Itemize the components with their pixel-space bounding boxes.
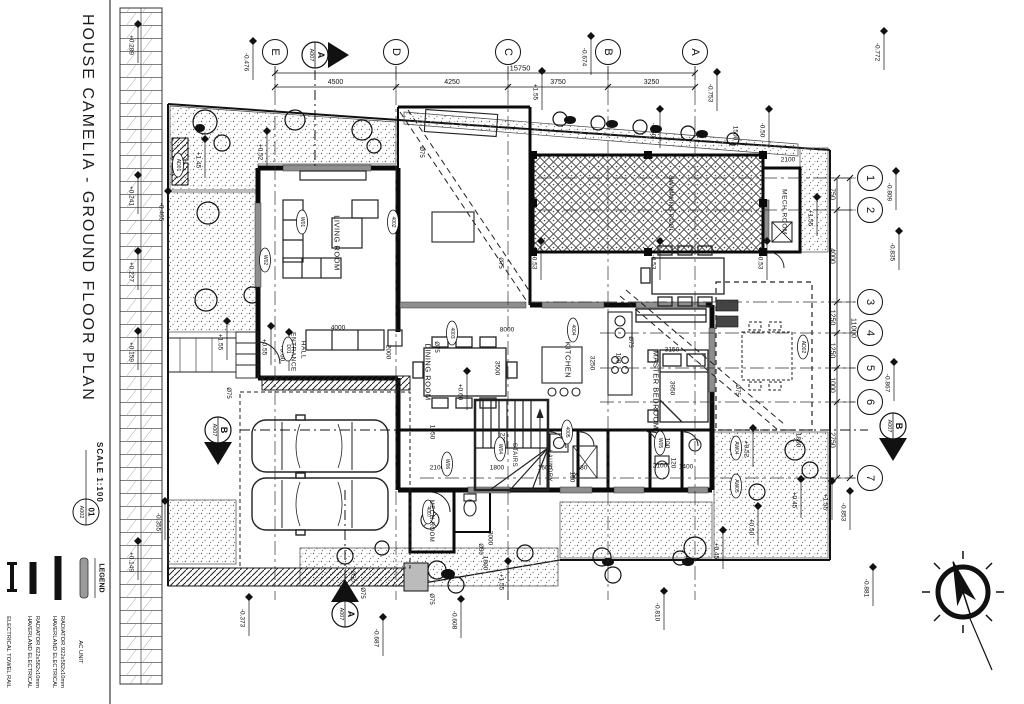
level-value: -0.608 (451, 611, 458, 630)
level-value: +1.55 (807, 210, 814, 227)
tag-code: 4002 (390, 216, 396, 227)
radiator-icon (30, 562, 37, 594)
tag-code: 4003 (449, 327, 455, 338)
dim-interior: 3150 (665, 347, 680, 354)
level-value: +0.60 (457, 384, 464, 401)
element-tag: W06 (442, 452, 453, 476)
tag-code: W02 (262, 255, 268, 266)
room-label: HALL (300, 341, 307, 359)
level-value: +1.45 (195, 152, 202, 169)
level-value: +0.55 (261, 339, 268, 356)
element-tag: W02 (260, 248, 271, 272)
dim-interior: 3500 (494, 361, 501, 376)
section-marker: AA007 (302, 42, 349, 68)
furniture-living (283, 171, 402, 350)
room-label: KITCHEN (564, 342, 573, 378)
grid-column-label: B (602, 48, 614, 55)
level-value: -0.50 (650, 123, 657, 138)
element-tag: W05 (655, 431, 666, 455)
canopy-walls (398, 107, 530, 305)
level-marker: -0.753 (707, 68, 722, 111)
dim-top-segment: 3750 (550, 79, 566, 86)
section-sheet: A007 (338, 608, 344, 621)
grid-row-label: 6 (864, 399, 876, 405)
level-marker: -0.476 (243, 37, 258, 80)
tag-code: W06 (444, 459, 450, 470)
sheet-code: A002 (78, 506, 84, 519)
ac-unit-icon (80, 558, 88, 598)
dim-interior: 1500 (732, 126, 739, 141)
dim-interior: 3250 (589, 356, 596, 371)
element-tag: W04 (495, 437, 506, 461)
level-value: -0.853 (840, 503, 847, 522)
floor-plan-canvas: EDCBA1234567 157504500425037503250750400… (0, 0, 1024, 704)
terrace-table-dashed (742, 322, 792, 390)
legend-label: HAVERLAND ELECTRICAL (26, 616, 32, 689)
section-letter: B (894, 423, 904, 430)
level-marker: -0.809 (886, 167, 901, 210)
grid-column-label: D (390, 48, 402, 56)
level-value: +0.50 (748, 519, 755, 536)
towel-rail-icon (7, 562, 17, 565)
dim-top-segment: 4250 (444, 79, 460, 86)
room-label: MASTER BEDROOM (652, 350, 661, 429)
level-value: +0.227 (128, 262, 135, 282)
pipe-diameter-label: Ø75 (359, 587, 365, 599)
level-value: -0.867 (884, 374, 891, 393)
ac-outdoor-units (716, 300, 738, 327)
entrance-steps (168, 332, 258, 378)
pipe-diameter-label: Ø75 (418, 146, 424, 158)
dim-interior: 1800 (490, 465, 505, 472)
dim-interior: 3950 (669, 381, 676, 396)
room-label: STAIRS (511, 443, 517, 467)
grid-row-label: 1 (864, 175, 876, 181)
dim-interior: 3000 (487, 531, 494, 546)
level-value: -0.355 (155, 513, 162, 532)
element-tag: AW04 (731, 436, 742, 460)
section-marker: BA007 (879, 413, 907, 461)
level-marker: -0.867 (884, 358, 899, 401)
level-value: +1.55 (822, 494, 829, 511)
level-value: -0.373 (239, 609, 246, 628)
element-tag: AW05 (731, 474, 742, 498)
section-letter: A (346, 611, 356, 618)
section-sheet: A007 (886, 420, 892, 433)
grid-row-label: 2 (864, 207, 876, 213)
section-arrow-icon (204, 442, 232, 465)
legend-item: HAVERLAND ELECTRICALRADIATOR 622x582x10m… (26, 562, 40, 689)
element-tag: 4002 (388, 210, 399, 234)
level-value: -0.881 (863, 579, 870, 598)
dim-right-segment: 1250 (829, 343, 836, 359)
level-marker: -0.810 (654, 587, 669, 630)
level-value: -0.810 (654, 603, 661, 622)
level-value: -0.674 (581, 48, 588, 67)
pipe-diameter-label: Ø75 (497, 257, 503, 269)
dim-interior: 120 (670, 458, 677, 469)
level-marker: -0.853 (840, 487, 855, 530)
dim-interior: 8000 (500, 327, 515, 334)
element-tag: W01 (297, 210, 308, 234)
grid-row-label: 5 (864, 365, 876, 371)
legend-label: ELECTRICAL TOWEL RAIL (5, 616, 11, 689)
legend-label: HAVERLAND ELECTRICAL (51, 616, 57, 689)
level-marker: -0.373 (239, 593, 254, 636)
sheet-scale: SCALE 1:100 (95, 442, 104, 503)
legend-item: ELECTRICAL TOWEL RAIL (5, 562, 17, 689)
dim-right-segment: 1000 (829, 377, 836, 393)
level-marker: -0.835 (889, 227, 904, 270)
dim-interior: 1800 (482, 556, 489, 571)
dim-right-segment: 750 (829, 188, 836, 200)
level-marker: -0.881 (863, 563, 878, 606)
dim-interior: 1800 (795, 433, 802, 448)
legend-label: RADIATOR 922x582x10mm (59, 616, 65, 688)
section-marker: BA007 (204, 417, 232, 465)
pipe-diameter-label: Ø50 (349, 570, 355, 582)
dim-interior: 680 (577, 465, 588, 472)
level-marker: +0.60 (457, 367, 472, 410)
level-value: +0.45 (713, 543, 720, 560)
tag-code: W04 (497, 444, 503, 455)
section-letter: A (316, 52, 326, 59)
dim-right-segment: 1250 (829, 310, 836, 326)
dim-interior: 100 (615, 353, 622, 364)
towel-rail-icon (10, 564, 14, 590)
room-label: LIVING ROOM (333, 215, 342, 271)
pipe-diameter-label: Ø75 (627, 336, 633, 348)
room-label: MECH.ROOM (781, 189, 788, 235)
level-value: +0.45 (791, 492, 798, 509)
level-marker: +1.55 (532, 67, 547, 110)
level-value: -0.476 (243, 53, 250, 72)
towel-rail-icon (7, 589, 17, 592)
legend-label: AC UNIT (77, 640, 83, 664)
legend-item: AC UNIT (77, 558, 88, 664)
sheet-title: HOUSE CAMELIA - GROUND FLOOR PLAN (78, 14, 96, 402)
grid-row-label: 7 (864, 475, 876, 481)
pipe-diameter-label: Ø75 (734, 384, 740, 396)
tag-code: W05 (657, 438, 663, 449)
tag-code: AW05 (733, 479, 739, 493)
level-value: +0.52 (257, 144, 264, 161)
level-value: -0.53 (650, 255, 657, 270)
element-tag: 4005 (562, 420, 573, 444)
level-marker: -0.608 (451, 595, 466, 638)
level-value: +0.289 (128, 35, 135, 55)
dim-interior: 2000 (385, 345, 392, 360)
dim-top-segment: 4500 (328, 79, 344, 86)
section-arrow-icon (328, 42, 349, 68)
grid-column-label: E (269, 48, 281, 55)
dim-right-total: 11000 (850, 318, 859, 338)
level-marker: -0.772 (874, 27, 889, 70)
dim-right-segment: 4000 (829, 248, 836, 264)
grid-column-label: A (689, 48, 701, 56)
dim-interior: 1400 (679, 464, 694, 471)
north-compass (922, 551, 1004, 670)
pipe-diameter-label: Ø75 (433, 341, 439, 353)
dim-interior: 1050 (429, 425, 436, 440)
level-value: -0.53 (757, 255, 764, 270)
level-value: -0.53 (531, 255, 538, 270)
tag-code: AD01 (175, 159, 181, 172)
legend-title: LEGEND (98, 563, 105, 592)
pipe-diameter-label: Ø75 (225, 387, 231, 399)
carport-cars (252, 376, 410, 535)
level-value: +1.55 (217, 334, 224, 351)
tag-code: AW04 (733, 441, 739, 455)
section-sheet: A007 (211, 424, 217, 437)
level-marker: -0.687 (373, 613, 388, 656)
tag-code: AD02 (800, 341, 806, 354)
drawing-sheet: { "sheet": { "title": "HOUSE CAMELIA - G… (0, 0, 1024, 704)
car (252, 415, 388, 477)
grid-row-label: 3 (864, 299, 876, 305)
level-value: -0.809 (886, 183, 893, 202)
element-tag: AD02 (798, 335, 809, 359)
level-value: +0.52 (743, 441, 750, 458)
dim-right-segment: 2750 (829, 432, 836, 448)
element-tag: 4004 (568, 318, 579, 342)
dim-interior: 2100 (781, 157, 796, 164)
tag-code: 4004 (570, 324, 576, 335)
room-label: ENTRANCE (290, 332, 297, 372)
room-label: SWIMMING POOL (667, 176, 673, 233)
dim-top-segment: 3250 (644, 79, 660, 86)
pipe-diameter-label: Ø50 (477, 543, 483, 555)
dim-interior: 4000 (331, 325, 346, 332)
level-value: -0.50 (759, 123, 766, 138)
radiator-icon (55, 556, 62, 600)
legend-item: HAVERLAND ELECTRICALRADIATOR 922x582x10m… (51, 556, 65, 689)
room-label: MECH.ROOM (428, 500, 434, 543)
legend-label: RADIATOR 622x582x10mm (34, 616, 40, 688)
level-value: +0.159 (128, 342, 135, 362)
level-value: +0.149 (128, 552, 135, 572)
level-value: -0.835 (889, 243, 896, 262)
pipe-diameter-label: Ø75 (428, 593, 434, 605)
swimming-pool (529, 151, 767, 256)
level-marker: -0.674 (581, 32, 596, 75)
level-value: -0.465 (158, 203, 165, 222)
tag-code: W01 (299, 217, 305, 228)
level-value: -0.753 (707, 84, 714, 103)
element-tag: AD01 (173, 153, 184, 177)
car (252, 473, 388, 535)
drawing-number: 01 (87, 508, 96, 517)
dim-interior: 100 (569, 472, 576, 483)
level-marker: +0.55 (261, 322, 276, 365)
level-value: +0.241 (128, 186, 135, 206)
level-value: -0.687 (373, 629, 380, 648)
tag-code: 4005 (564, 426, 570, 437)
section-sheet: A007 (308, 49, 314, 62)
dim-top-total: 15750 (510, 64, 531, 73)
grid-row-label: 4 (864, 330, 876, 336)
grid-column-label: C (502, 48, 514, 56)
furniture-bedroom (636, 309, 708, 422)
level-value: -0.772 (874, 43, 881, 62)
street-pavement (120, 8, 162, 684)
level-value: +1.55 (498, 574, 505, 591)
section-letter: B (219, 427, 229, 434)
level-value: +1.55 (532, 84, 539, 101)
dim-interior: 2100 (653, 463, 668, 470)
section-arrow-icon (879, 438, 907, 461)
room-label: LAUNDRY (546, 450, 552, 482)
room-label: DINING ROOM (424, 343, 433, 400)
element-tag: 4003 (447, 321, 458, 345)
